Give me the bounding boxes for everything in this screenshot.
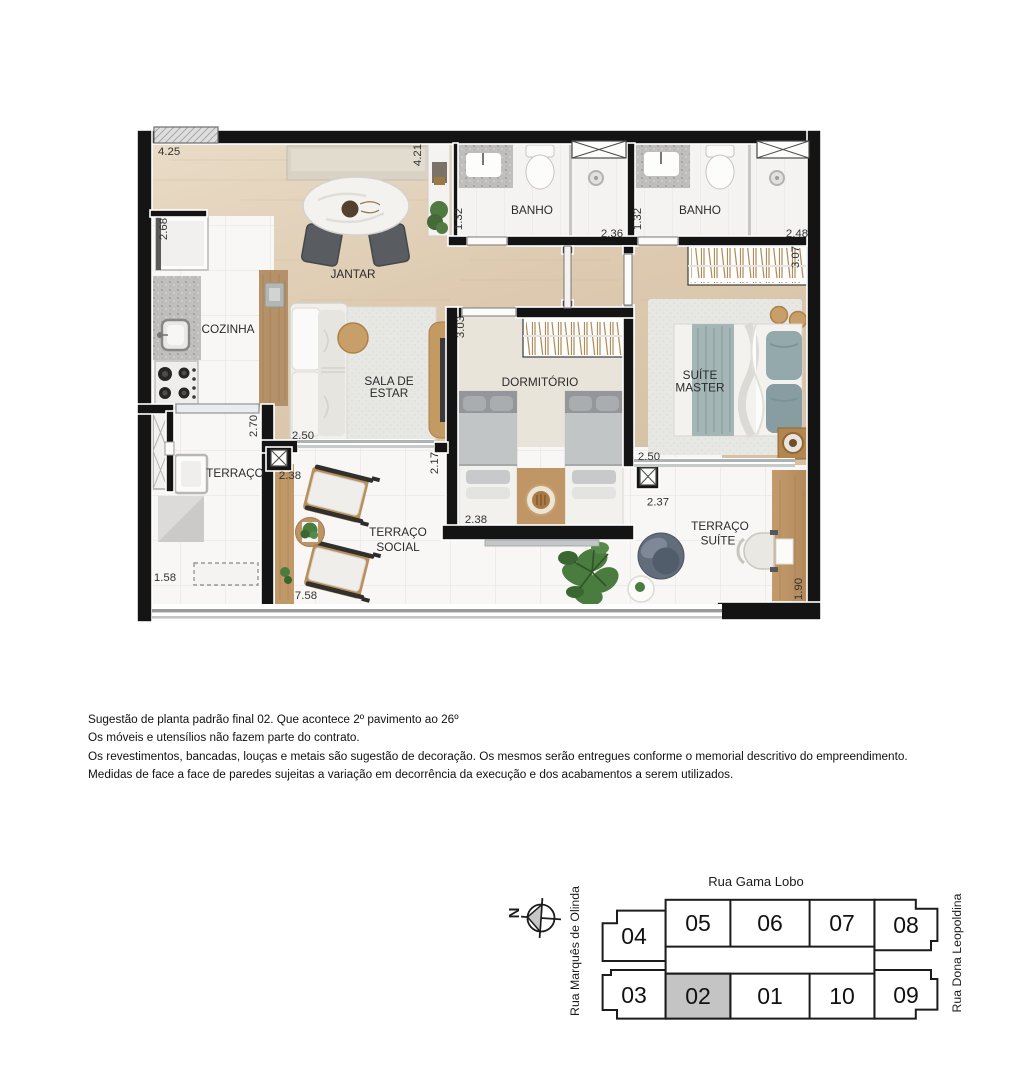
svg-text:COZINHA: COZINHA — [201, 322, 254, 336]
svg-text:08: 08 — [893, 912, 919, 938]
svg-text:N: N — [506, 908, 523, 919]
svg-text:2.50: 2.50 — [292, 430, 314, 442]
svg-text:01: 01 — [757, 983, 783, 1009]
svg-text:2.48: 2.48 — [786, 228, 808, 240]
svg-text:TERRAÇO: TERRAÇO — [369, 525, 427, 539]
svg-text:2.17: 2.17 — [429, 452, 441, 474]
svg-text:JANTAR: JANTAR — [330, 267, 375, 281]
svg-text:1.32: 1.32 — [632, 208, 644, 230]
svg-text:Rua Marquês de Olinda: Rua Marquês de Olinda — [568, 886, 582, 1016]
svg-text:3.07: 3.07 — [790, 246, 802, 268]
svg-text:06: 06 — [757, 910, 783, 936]
svg-text:SOCIAL: SOCIAL — [376, 540, 420, 554]
svg-text:TERRAÇO: TERRAÇO — [691, 519, 749, 533]
svg-text:2.38: 2.38 — [279, 470, 301, 482]
svg-text:10: 10 — [829, 983, 855, 1009]
svg-text:MASTER: MASTER — [675, 381, 724, 395]
svg-text:02: 02 — [685, 983, 711, 1009]
svg-text:TERRAÇO: TERRAÇO — [206, 466, 264, 480]
svg-text:1.58: 1.58 — [154, 572, 176, 584]
svg-text:2.36: 2.36 — [601, 228, 623, 240]
svg-text:7.58: 7.58 — [295, 590, 317, 602]
svg-text:4.25: 4.25 — [158, 146, 180, 158]
svg-text:2.37: 2.37 — [647, 497, 669, 509]
svg-text:4.21: 4.21 — [412, 144, 424, 166]
svg-text:2.68: 2.68 — [158, 218, 170, 240]
svg-text:2.38: 2.38 — [465, 514, 487, 526]
svg-text:04: 04 — [621, 923, 647, 949]
svg-text:Rua Gama Lobo: Rua Gama Lobo — [708, 874, 803, 889]
svg-text:3.03: 3.03 — [455, 316, 467, 338]
svg-text:SUÍTE: SUÍTE — [701, 534, 736, 548]
svg-text:1.90: 1.90 — [793, 578, 805, 600]
svg-text:1.32: 1.32 — [453, 208, 465, 230]
svg-text:09: 09 — [893, 982, 919, 1008]
svg-text:DORMITÓRIO: DORMITÓRIO — [502, 375, 579, 389]
svg-text:2.50: 2.50 — [638, 451, 660, 463]
svg-text:2.70: 2.70 — [248, 415, 260, 437]
svg-text:05: 05 — [685, 910, 711, 936]
svg-text:ESTAR: ESTAR — [370, 386, 408, 400]
svg-text:BANHO: BANHO — [511, 203, 553, 217]
svg-text:03: 03 — [621, 982, 647, 1008]
svg-text:07: 07 — [829, 910, 855, 936]
svg-text:Rua Dona Leopoldina: Rua Dona Leopoldina — [950, 893, 964, 1012]
svg-text:BANHO: BANHO — [679, 203, 721, 217]
